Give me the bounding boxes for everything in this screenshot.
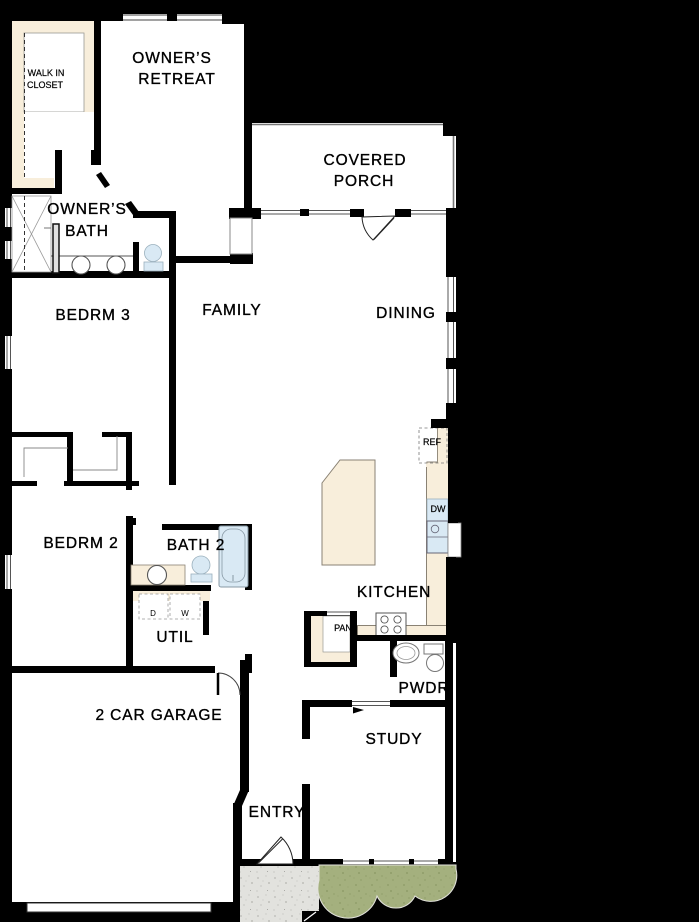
svg-text:BATH: BATH — [65, 223, 109, 240]
svg-text:D: D — [150, 609, 156, 618]
svg-text:W: W — [181, 609, 189, 618]
svg-text:STUDY: STUDY — [365, 731, 422, 748]
svg-text:OWNER’S: OWNER’S — [132, 50, 212, 67]
svg-text:ENTRY: ENTRY — [249, 804, 306, 821]
svg-text:DINING: DINING — [376, 305, 436, 322]
svg-text:PORCH: PORCH — [334, 173, 394, 190]
svg-text:PWDR: PWDR — [399, 680, 450, 697]
svg-text:2 CAR GARAGE: 2 CAR GARAGE — [95, 707, 222, 724]
svg-text:COVERED: COVERED — [324, 152, 407, 169]
svg-text:PAN: PAN — [334, 623, 352, 633]
svg-text:OWNER’S: OWNER’S — [47, 201, 127, 218]
svg-text:BEDRM 3: BEDRM 3 — [55, 307, 130, 324]
svg-text:REF: REF — [423, 437, 442, 447]
svg-text:CLOSET: CLOSET — [27, 80, 64, 90]
svg-text:BEDRM 2: BEDRM 2 — [43, 535, 118, 552]
svg-text:RETREAT: RETREAT — [138, 71, 216, 88]
svg-text:FAMILY: FAMILY — [202, 302, 261, 319]
svg-text:DW: DW — [431, 504, 446, 514]
svg-text:WALK IN: WALK IN — [28, 68, 65, 78]
svg-text:UTIL: UTIL — [156, 629, 193, 646]
svg-text:BATH 2: BATH 2 — [167, 537, 226, 554]
svg-text:KITCHEN: KITCHEN — [357, 584, 431, 601]
